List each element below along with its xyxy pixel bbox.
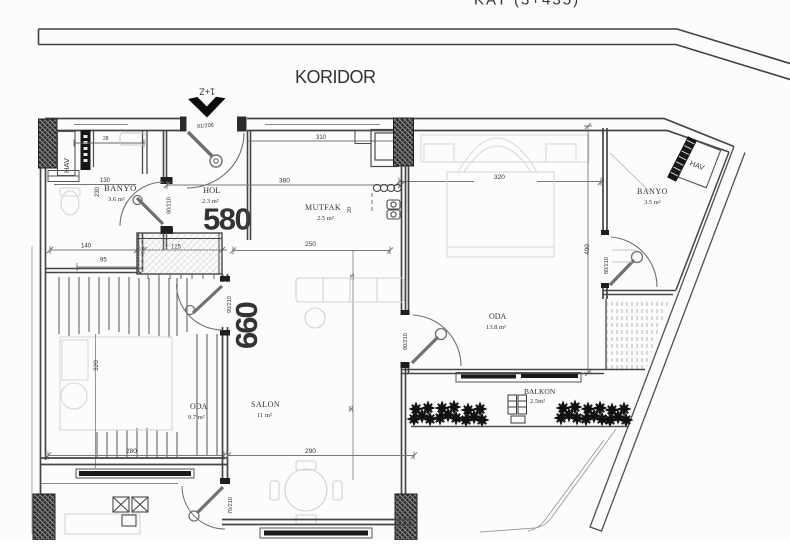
svg-text:320: 320 — [93, 360, 100, 371]
svg-text:35: 35 — [350, 274, 356, 280]
svg-text:320: 320 — [494, 174, 505, 181]
svg-text:380: 380 — [279, 178, 290, 185]
svg-text:580: 580 — [203, 202, 250, 237]
svg-text:3.5 m²: 3.5 m² — [644, 199, 661, 206]
svg-text:KORIDOR: KORIDOR — [295, 67, 376, 87]
svg-text:BANYO: BANYO — [637, 187, 668, 196]
svg-text:36: 36 — [349, 406, 355, 412]
svg-text:ODA: ODA — [489, 312, 507, 321]
svg-text:28: 28 — [103, 136, 109, 142]
svg-text:250: 250 — [305, 241, 316, 248]
svg-text:130: 130 — [100, 178, 111, 184]
svg-text:MUTFAK: MUTFAK — [305, 203, 341, 212]
svg-text:230: 230 — [95, 186, 101, 197]
svg-text:400: 400 — [584, 244, 591, 255]
svg-text:280: 280 — [126, 448, 137, 455]
svg-text:2.5 m²: 2.5 m² — [317, 215, 334, 222]
svg-text:ODA: ODA — [190, 402, 208, 411]
svg-text:140: 140 — [81, 244, 92, 250]
svg-text:80/210: 80/210 — [167, 197, 173, 214]
svg-text:11 m²: 11 m² — [257, 412, 272, 419]
svg-text:2.5m²: 2.5m² — [530, 398, 545, 405]
svg-text:BALKON: BALKON — [524, 387, 556, 396]
svg-text:SALON: SALON — [251, 400, 280, 409]
svg-text:1+Z: 1+Z — [199, 87, 215, 97]
svg-text:9.7 m²: 9.7 m² — [188, 414, 205, 421]
svg-text:20: 20 — [347, 207, 353, 213]
svg-text:310: 310 — [316, 135, 327, 141]
svg-text:13.8 m²: 13.8 m² — [486, 324, 506, 331]
svg-text:290: 290 — [305, 448, 316, 455]
svg-text:80/210: 80/210 — [604, 257, 610, 274]
svg-text:KAT (3+435): KAT (3+435) — [474, 0, 580, 9]
svg-text:95: 95 — [100, 258, 107, 264]
svg-text:70/210: 70/210 — [228, 497, 234, 514]
svg-text:91/206: 91/206 — [197, 123, 214, 130]
svg-text:HOL: HOL — [203, 185, 220, 195]
svg-text:660: 660 — [229, 303, 264, 349]
svg-text:90/210: 90/210 — [403, 333, 409, 350]
svg-text:3.6 m²: 3.6 m² — [108, 196, 125, 203]
